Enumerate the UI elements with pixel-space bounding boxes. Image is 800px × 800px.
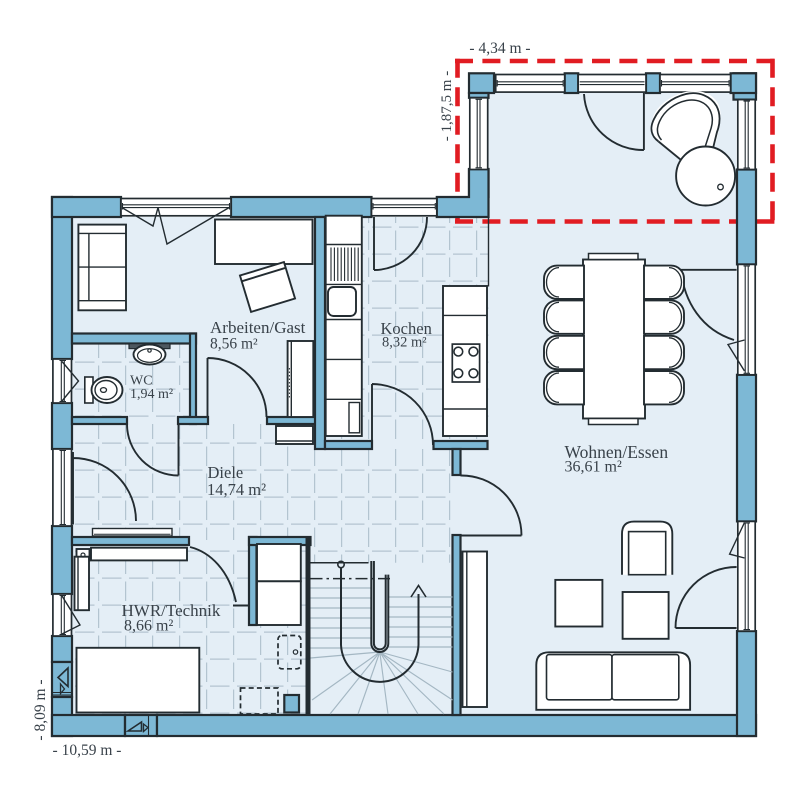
svg-text:8,56 m²: 8,56 m²: [210, 336, 258, 353]
svg-text:- 4,34 m -: - 4,34 m -: [469, 40, 530, 57]
svg-text:- 8,09 m -: - 8,09 m -: [32, 679, 49, 740]
svg-text:- 10,59 m -: - 10,59 m -: [53, 742, 122, 759]
svg-text:8,66 m²: 8,66 m²: [124, 618, 173, 635]
svg-text:14,74 m²: 14,74 m²: [207, 480, 266, 499]
svg-text:1,94 m²: 1,94 m²: [130, 387, 173, 402]
svg-text:- 1,87,5 m -: - 1,87,5 m -: [439, 71, 455, 141]
svg-text:36,61 m²: 36,61 m²: [565, 459, 622, 476]
svg-text:8,32 m²: 8,32 m²: [382, 335, 427, 351]
svg-text:Arbeiten/Gast: Arbeiten/Gast: [210, 318, 306, 337]
